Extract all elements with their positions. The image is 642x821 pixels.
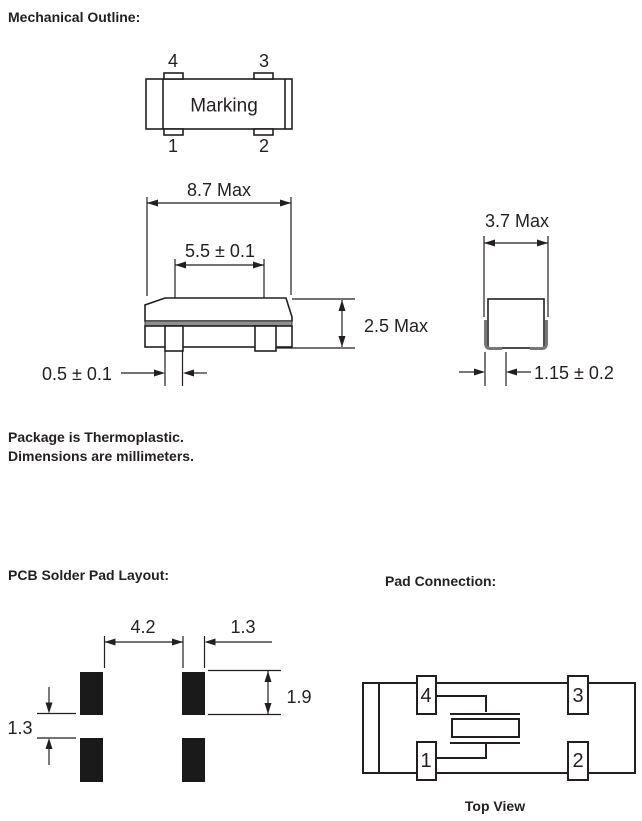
dim-4-2 — [105, 636, 184, 668]
dim-0-5 — [121, 350, 207, 386]
dim-label-height: 2.5 Max — [364, 316, 428, 336]
dim-label-body-length: 8.7 Max — [187, 180, 251, 200]
pin3-tab — [254, 73, 273, 79]
note-line-2: Dimensions are millimeters. — [8, 447, 194, 466]
top-view-caption: Top View — [465, 798, 525, 814]
mechanical-outline-heading: Mechanical Outline: — [8, 9, 140, 25]
dim-label-end-lead-width: 1.15 ± 0.2 — [534, 363, 614, 383]
pin4-tab — [164, 73, 183, 79]
plan-pin3-label: 3 — [259, 51, 269, 71]
solder-pad-bottom-right — [182, 738, 205, 782]
package-end-view-drawing — [484, 236, 548, 349]
dim-label-pad-width: 1.3 — [230, 617, 255, 637]
note-line-1: Package is Thermoplastic. — [8, 428, 194, 447]
crystal-element — [452, 719, 519, 737]
connection-pad1-label: 1 — [420, 750, 431, 772]
dim-1-15 — [459, 352, 531, 386]
pin1-tab — [164, 129, 183, 135]
plan-pin1-label: 1 — [168, 136, 178, 156]
solder-pad-bottom-left — [80, 738, 103, 782]
pcb-pad-layout-heading: PCB Solder Pad Layout: — [8, 567, 169, 583]
pad-connection-drawing — [363, 676, 635, 780]
solder-pad-top-left — [80, 672, 103, 715]
dim-label-body-width: 3.7 Max — [485, 211, 549, 231]
dim-1-3-gap — [37, 687, 76, 765]
plan-pin4-label: 4 — [168, 51, 178, 71]
package-lid-outline — [145, 298, 292, 321]
pcb-pad-layout-drawing — [37, 636, 281, 782]
package-notes: Package is Thermoplastic. Dimensions are… — [8, 428, 194, 465]
marking-label: Marking — [190, 96, 258, 117]
pad-connection-heading: Pad Connection: — [385, 573, 496, 589]
right-lead — [255, 326, 276, 351]
package-front-view-drawing — [145, 298, 292, 351]
pin2-tab — [254, 129, 273, 135]
connection-pad2-label: 2 — [572, 750, 583, 772]
dim-label-pad-span: 4.2 — [130, 617, 155, 637]
left-lead — [165, 326, 183, 351]
dim-1-9 — [208, 671, 281, 715]
end-view-body-outline — [488, 299, 544, 348]
datasheet-page: Mechanical Outline: 4 3 1 2 Marking 8.7 … — [0, 0, 642, 821]
dim-label-lead-width: 0.5 ± 0.1 — [42, 364, 112, 384]
dim-label-lead-spacing: 5.5 ± 0.1 — [185, 241, 255, 261]
connection-pad3-label: 3 — [572, 685, 583, 707]
plan-pin2-label: 2 — [259, 136, 269, 156]
dim-1-3-width — [205, 636, 273, 668]
dim-label-pad-height: 1.9 — [286, 687, 311, 707]
solder-pad-top-right — [182, 672, 205, 715]
connection-pad4-label: 4 — [420, 685, 431, 707]
outline-drawing-linework — [0, 0, 642, 821]
dim-label-pad-gap: 1.3 — [7, 718, 32, 738]
